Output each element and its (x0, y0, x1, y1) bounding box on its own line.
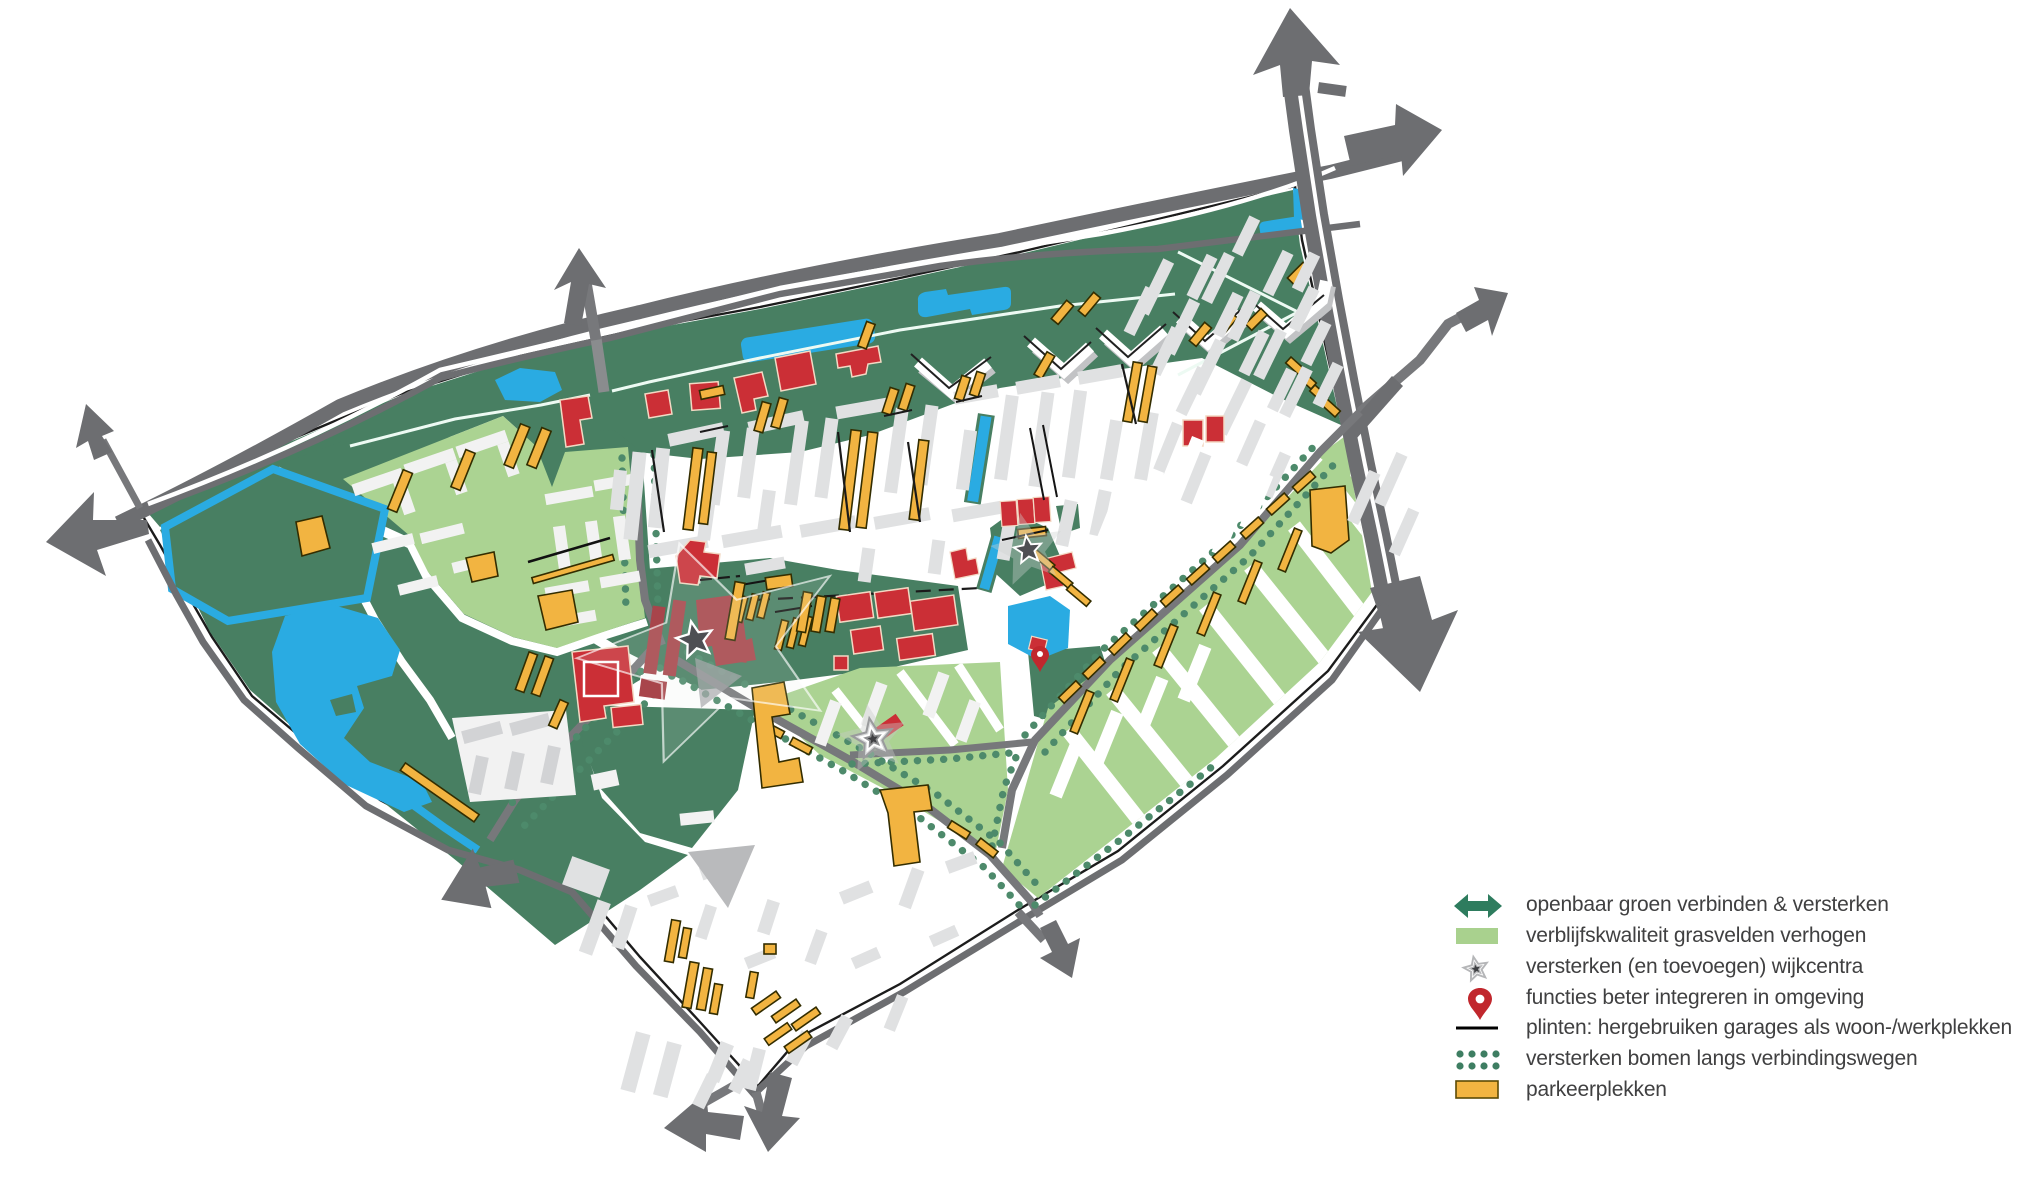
svg-text:verblijfskwaliteit grasvelden: verblijfskwaliteit grasvelden verhogen (1526, 924, 1866, 947)
svg-text:openbaar groen verbinden & ver: openbaar groen verbinden & versterken (1526, 893, 1889, 916)
svg-text:functies beter integreren in o: functies beter integreren in omgeving (1526, 986, 1864, 1009)
svg-text:plinten: hergebruiken garages: plinten: hergebruiken garages als woon-/… (1526, 1016, 2012, 1039)
svg-text:versterken (en toevoegen) wijk: versterken (en toevoegen) wijkcentra (1526, 955, 1864, 978)
svg-text:parkeerplekken: parkeerplekken (1526, 1078, 1667, 1101)
svg-text:versterken bomen langs verbind: versterken bomen langs verbindingswegen (1526, 1047, 1917, 1070)
